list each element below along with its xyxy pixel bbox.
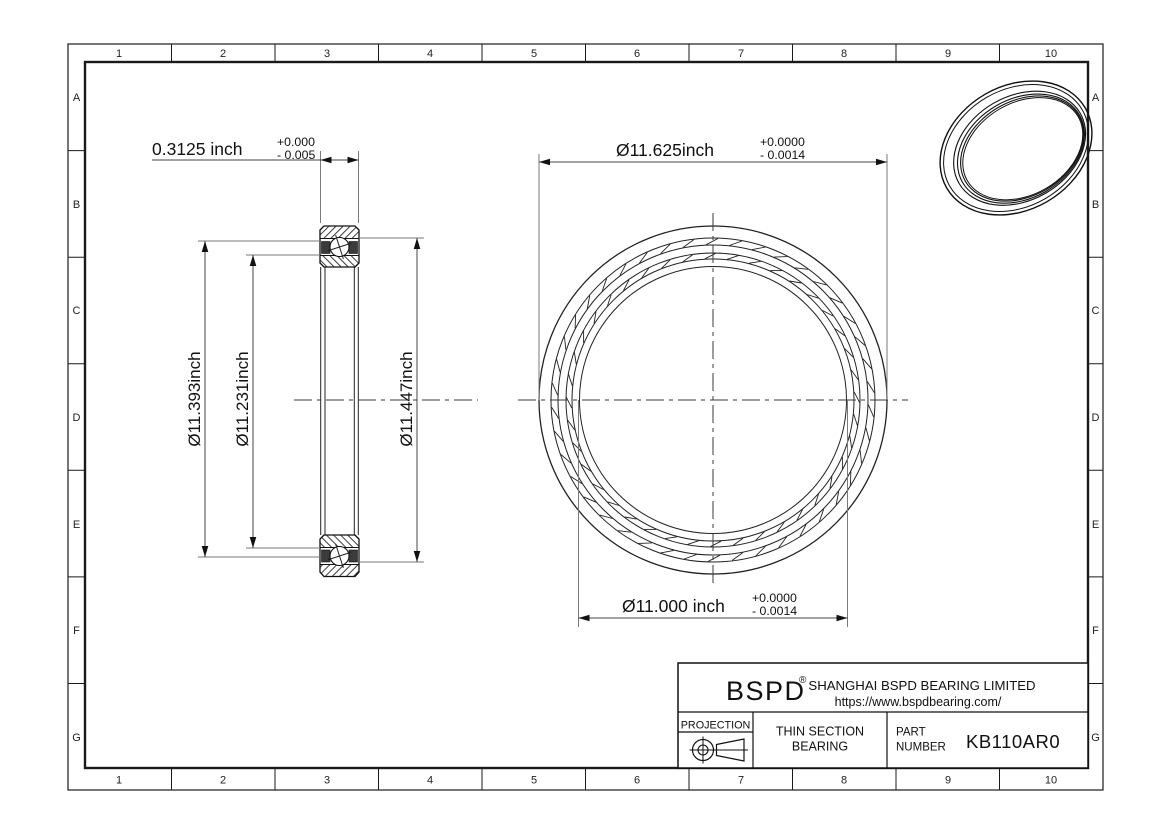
cage-tick xyxy=(684,555,697,560)
inner-ring-hatch xyxy=(320,535,359,548)
cage-tick xyxy=(774,257,787,258)
width-dim-tol-minus: - 0.005 xyxy=(277,148,315,162)
width-dim-value: 0.3125 inch xyxy=(152,139,243,159)
cage-tick xyxy=(705,253,716,258)
cage-tick xyxy=(710,541,721,546)
registered-mark: ® xyxy=(799,675,807,686)
col-label-top: 7 xyxy=(738,48,744,60)
cage-tick xyxy=(867,382,874,393)
col-label-bottom: 1 xyxy=(116,775,122,787)
seal-right xyxy=(349,550,358,562)
row-label-right: E xyxy=(1092,519,1099,531)
dia-right-label: Ø11.447inch xyxy=(397,351,416,446)
cage-tick xyxy=(552,407,559,418)
col-label-bottom: 10 xyxy=(1045,775,1057,787)
cage-tick xyxy=(708,555,720,561)
col-label-top: 3 xyxy=(324,48,330,60)
title-block: BSPD ® SHANGHAI BSPD BEARING LIMITED htt… xyxy=(678,663,1088,768)
front-view: Ø11.625inch +0.0000 - 0.0014 Ø11.000 inc… xyxy=(518,135,908,627)
col-label-bottom: 8 xyxy=(841,775,847,787)
col-label-top: 1 xyxy=(116,48,122,60)
dia-left-outer-label: Ø11.393inch xyxy=(185,351,204,446)
cage-tick xyxy=(860,450,862,463)
dia-left-inner-label: Ø11.231inch xyxy=(233,351,252,446)
row-label-left: D xyxy=(73,412,81,424)
col-label-top: 4 xyxy=(427,48,433,60)
col-label-bottom: 7 xyxy=(738,775,744,787)
row-label-left: B xyxy=(73,199,80,211)
col-label-top: 9 xyxy=(945,48,951,60)
row-label-right: B xyxy=(1092,199,1099,211)
bearing-3d-view xyxy=(916,54,1117,241)
engineering-drawing: 1 2 3 4 5 6 7 8 9 10 1 2 3 4 5 6 7 8 9 1… xyxy=(0,0,1170,827)
col-label-top: 5 xyxy=(531,48,537,60)
col-label-top: 2 xyxy=(220,48,226,60)
row-label-right: D xyxy=(1092,412,1100,424)
company-website: https://www.bspdbearing.com/ xyxy=(835,695,1002,709)
part-label-line1: PART xyxy=(896,727,926,739)
outer-ring-hatch xyxy=(320,565,359,577)
row-tick-lines xyxy=(68,151,1103,684)
cage-tick xyxy=(564,336,566,349)
row-label-right: C xyxy=(1092,305,1100,317)
col-label-bottom: 9 xyxy=(945,775,951,787)
col-label-bottom: 3 xyxy=(324,775,330,787)
cage-tick xyxy=(706,239,718,245)
cage-tick xyxy=(574,352,576,364)
col-label-top: 10 xyxy=(1045,48,1057,60)
drawing-sheet: 1 2 3 4 5 6 7 8 9 10 1 2 3 4 5 6 7 8 9 1… xyxy=(0,0,1170,827)
extension-lines xyxy=(198,151,424,562)
col-label-bottom: 4 xyxy=(427,775,433,787)
part-label-line2: NUMBER xyxy=(896,742,946,754)
cage-tick xyxy=(854,392,859,403)
bore-dim-tol-plus: +0.0000 xyxy=(752,591,797,605)
col-label-bottom: 2 xyxy=(220,775,226,787)
row-label-left: A xyxy=(73,92,81,104)
cage-tick xyxy=(569,375,573,386)
iso-bore-edge-3 xyxy=(942,75,1103,223)
row-label-left: F xyxy=(73,625,80,637)
cage-tick xyxy=(866,428,870,441)
col-label-bottom: 5 xyxy=(531,775,537,787)
col-label-top: 6 xyxy=(634,48,640,60)
projection-label: PROJECTION xyxy=(681,720,751,732)
cage-tick xyxy=(868,405,873,417)
bore-dim-tol-minus: - 0.0014 xyxy=(752,604,797,618)
cage-tick xyxy=(665,537,677,539)
outer-ring-hatch xyxy=(320,226,359,239)
row-label-right: F xyxy=(1092,625,1099,637)
od-dim-value: Ø11.625inch xyxy=(616,140,714,160)
row-label-right: A xyxy=(1092,92,1100,104)
cage-tick xyxy=(850,472,851,485)
bore-dim-value: Ø11.000 inch xyxy=(622,596,725,616)
row-label-left: C xyxy=(73,305,81,317)
cage-tick xyxy=(557,359,561,372)
od-dim-tol-minus: - 0.0014 xyxy=(760,148,805,162)
cage-tick xyxy=(749,261,761,263)
od-dim-tol-plus: +0.0000 xyxy=(760,135,805,149)
section-cut-bottom xyxy=(320,535,359,577)
cage-tick xyxy=(850,436,852,448)
col-label-top: 8 xyxy=(841,48,847,60)
cage-tick xyxy=(752,247,765,250)
cage-tick xyxy=(566,397,571,408)
cage-tick xyxy=(552,383,557,395)
product-type-line1: THIN SECTION xyxy=(776,725,864,739)
cage-tick xyxy=(575,315,576,328)
brand-logo: BSPD xyxy=(726,676,806,706)
cage-tick xyxy=(661,550,674,553)
seal-left xyxy=(322,242,331,254)
section-cut-top xyxy=(320,226,359,267)
company-name: SHANGHAI BSPD BEARING LIMITED xyxy=(808,678,1035,693)
row-label-left: G xyxy=(72,732,81,744)
cage-tick xyxy=(727,256,738,260)
row-label-left: E xyxy=(73,519,80,531)
ring-face-lines xyxy=(321,267,359,535)
inner-ring-hatch xyxy=(320,256,359,268)
col-label-bottom: 6 xyxy=(634,775,640,787)
section-view: 0.3125 inch +0.000 - 0.005 Ø11.393inch Ø… xyxy=(152,135,478,577)
seal-left xyxy=(322,550,331,562)
row-label-right: G xyxy=(1091,732,1100,744)
product-type-line2: BEARING xyxy=(792,740,848,754)
part-number: KB110AR0 xyxy=(966,731,1060,752)
cage-tick xyxy=(854,414,858,425)
cage-tick xyxy=(729,241,742,246)
width-dim-tol-plus: +0.000 xyxy=(277,135,315,149)
cage-tick xyxy=(639,543,652,544)
cage-tick xyxy=(688,541,699,545)
